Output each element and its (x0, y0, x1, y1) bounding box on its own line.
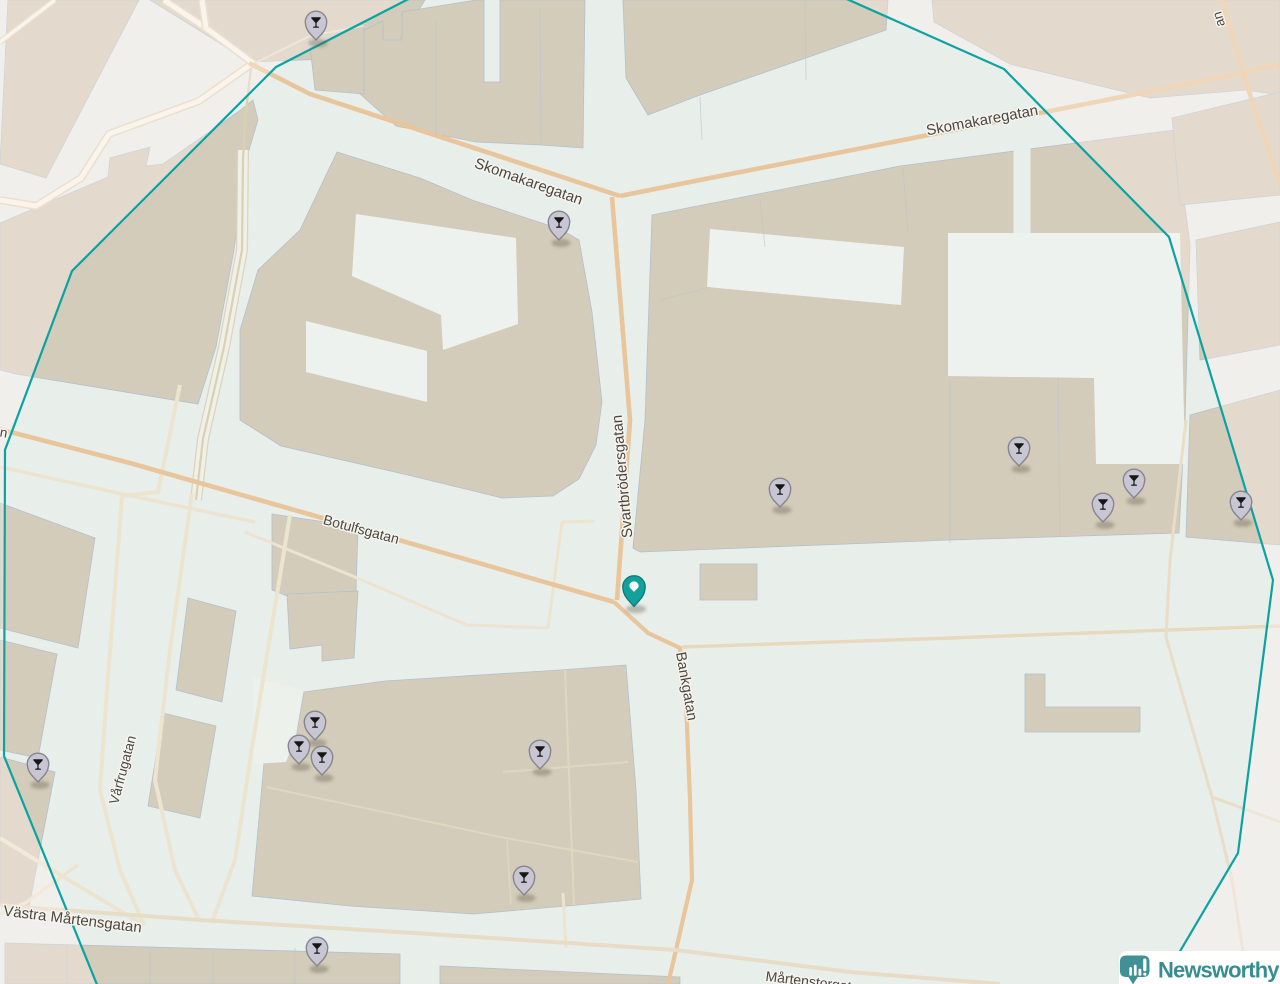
svg-text:Newsworthy: Newsworthy (1158, 958, 1280, 983)
